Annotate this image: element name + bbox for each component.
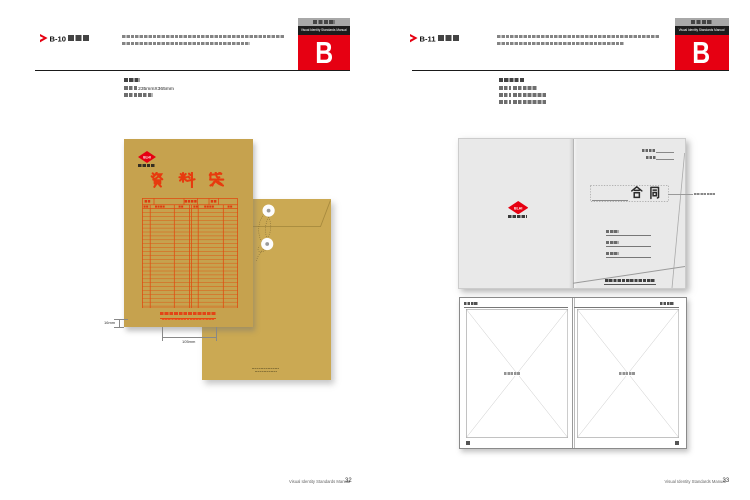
svg-text:BLHI: BLHI — [143, 156, 151, 160]
